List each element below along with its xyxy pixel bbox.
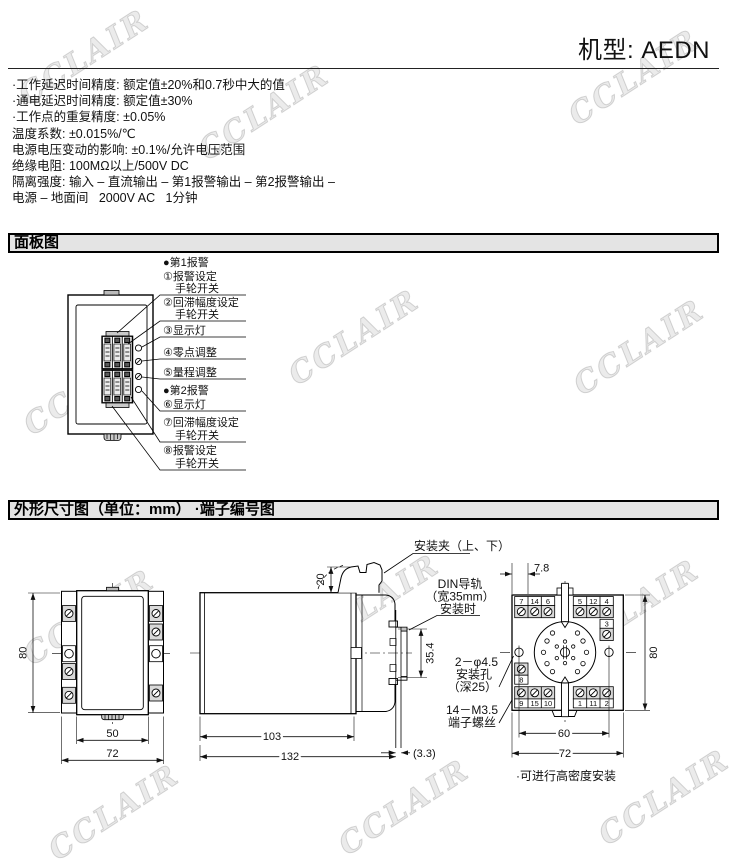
rear-dim-pitch: 7.8	[534, 563, 549, 575]
panel-label-1b: 手轮开关	[175, 281, 219, 295]
side-dim-clip: 20	[315, 573, 327, 585]
panel-device-drawing	[68, 291, 153, 441]
terminal-number: 7	[519, 597, 523, 606]
spec-line: 电源电压变动的影响: ±0.1%/允许电压范围	[12, 142, 335, 158]
side-dim-rail-extra: (3.3)	[413, 748, 436, 760]
panel-label-7b: 手轮开关	[175, 428, 219, 442]
terminal-number: 10	[544, 699, 552, 708]
callout-din-rail-3: 安装时	[440, 601, 476, 616]
terminal-number: 9	[519, 699, 523, 708]
terminal-number: 8	[519, 676, 523, 685]
section-header-outline: 外形尺寸图（单位：mm） ·端子编号图	[8, 500, 719, 520]
terminal-number: 3	[605, 620, 609, 629]
panel-label-8b: 手轮开关	[175, 456, 219, 470]
terminal-number: 5	[578, 597, 582, 606]
terminal-number: 12	[589, 597, 597, 606]
panel-label-3: ③显示灯	[163, 324, 206, 337]
rear-dim-hole-span: 60	[558, 728, 570, 740]
callout-mounting-clip: 安装夹（上、下）	[414, 538, 510, 553]
panel-label-2b: 手轮开关	[175, 307, 219, 321]
front-dim-width-outer: 72	[106, 748, 118, 760]
page-title-model: 机型: AEDN	[578, 30, 710, 65]
section-header-panel: 面板图	[8, 233, 719, 253]
spec-list: ·工作延迟时间精度: 额定值±20%和0.7秒中大的值 ·通电延迟时间精度: 额…	[12, 77, 335, 207]
panel-label-1: ①报警设定	[163, 269, 217, 283]
terminal-number: 1	[578, 699, 582, 708]
datasheet-page: { "page": { "model_label": "机型: AEDN" },…	[0, 0, 732, 815]
front-terminal-screws-left	[63, 606, 76, 704]
terminal-number: 4	[605, 597, 609, 606]
front-dim-height: 80	[18, 647, 30, 659]
side-dim-body-depth: 103	[263, 731, 281, 743]
side-view	[190, 563, 412, 749]
front-dim-width-inner: 50	[106, 728, 118, 740]
panel-label-4: ④零点调整	[163, 345, 217, 359]
terminal-number: 15	[531, 699, 539, 708]
front-view	[52, 583, 172, 726]
rear-dim-height: 80	[648, 646, 660, 658]
terminal-number: 6	[546, 597, 550, 606]
spec-line: 温度系数: ±0.015%/℃	[12, 126, 335, 142]
high-density-note: ·可进行高密度安装	[516, 768, 616, 783]
callout-mounting-hole-3: （深25）	[448, 680, 497, 694]
panel-label-5: ⑤量程调整	[163, 365, 217, 379]
outline-diagram: 80 50 72 2	[0, 528, 732, 815]
terminal-number: 11	[589, 699, 597, 708]
spec-line: 隔离强度: 输入 – 直流输出 – 第1报警输出 – 第2报警输出 –	[12, 174, 335, 190]
panel-label-alarm2: ●第2报警	[163, 383, 209, 397]
panel-label-2: ②回滞幅度设定	[163, 295, 239, 309]
header-divider	[8, 68, 719, 69]
spec-line: ·工作点的重复精度: ±0.05%	[12, 109, 335, 125]
side-dim-rail: 35.4	[425, 642, 437, 663]
terminal-number: 14	[531, 597, 539, 606]
panel-labels: ●第1报警 ①报警设定 手轮开关 ②回滞幅度设定 手轮开关 ③显示灯 ④零点调整…	[163, 255, 239, 470]
panel-label-8: ⑧报警设定	[163, 443, 217, 457]
side-dim-total-depth: 132	[281, 751, 299, 763]
panel-diagram: ●第1报警 ①报警设定 手轮开关 ②回滞幅度设定 手轮开关 ③显示灯 ④零点调整…	[0, 253, 732, 483]
spec-line: ·通电延迟时间精度: 额定值±30%	[12, 93, 335, 109]
spec-line: 电源 – 地面间 2000V AC 1分钟	[12, 190, 335, 206]
spec-line: 绝缘电阻: 100MΩ以上/500V DC	[12, 158, 335, 174]
panel-label-alarm1: ●第1报警	[163, 255, 209, 269]
panel-label-7: ⑦回滞幅度设定	[163, 415, 239, 429]
callout-terminal-screws-2: 端子螺丝	[448, 716, 496, 730]
spec-line: ·工作延迟时间精度: 额定值±20%和0.7秒中大的值	[12, 77, 335, 93]
panel-label-6: ⑥显示灯	[163, 398, 206, 411]
rear-dim-width: 72	[559, 748, 571, 760]
rear-callout-leaders	[499, 656, 514, 723]
terminal-number: 2	[605, 699, 609, 708]
front-terminal-screws-right	[150, 606, 163, 702]
